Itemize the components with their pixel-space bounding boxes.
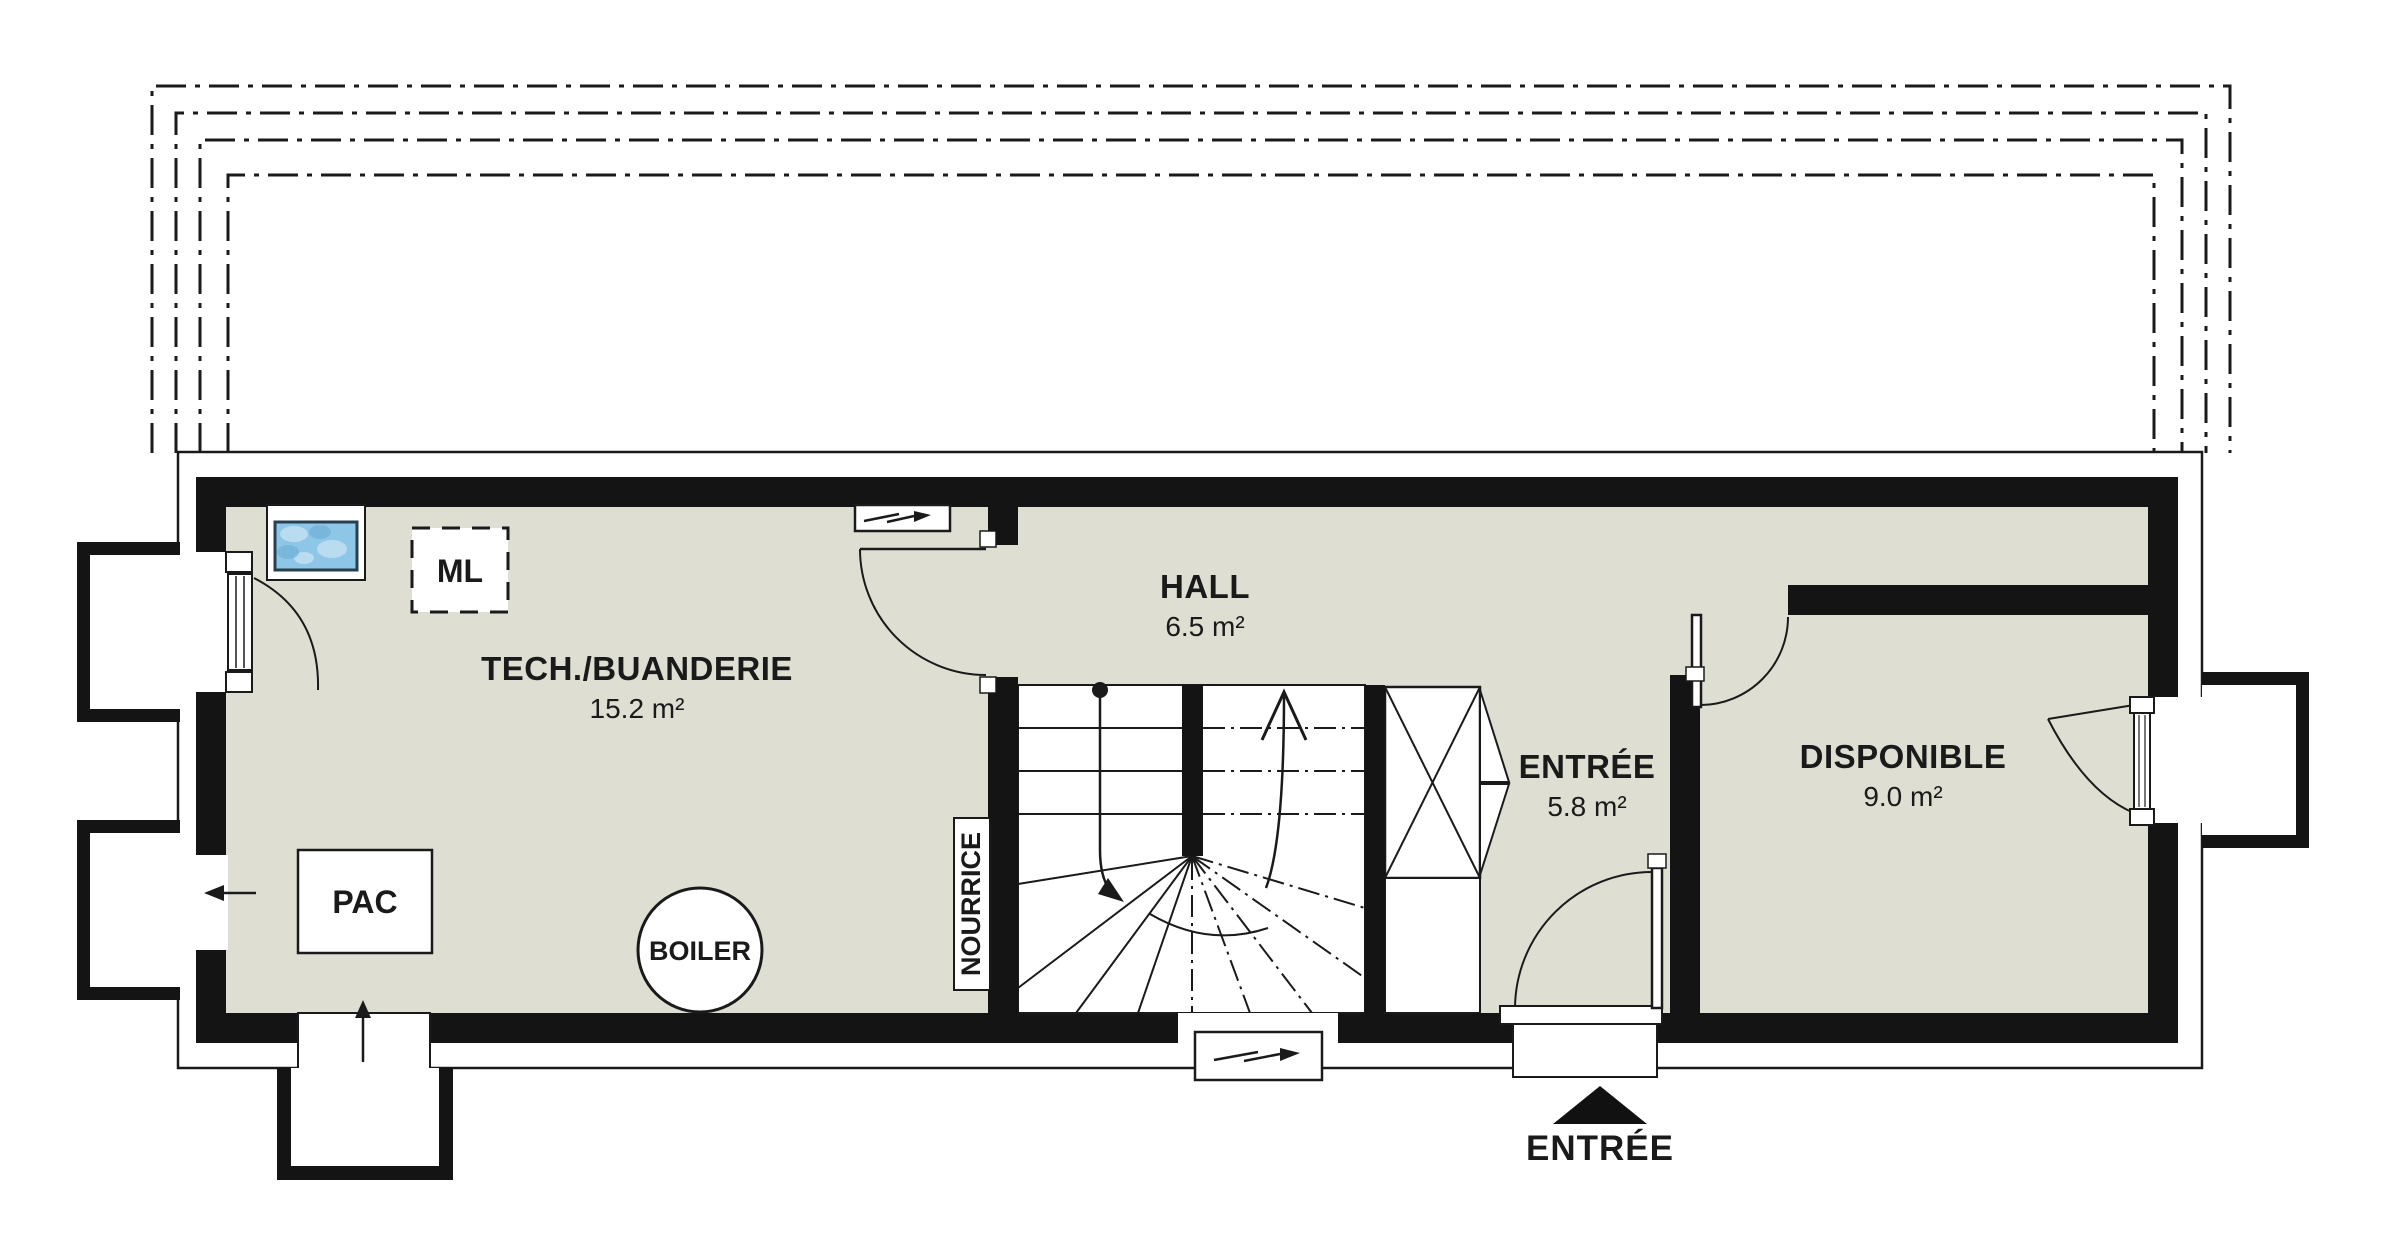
washing-machine-box: ML — [412, 528, 508, 612]
closet-box — [1385, 878, 1480, 1013]
room-name: DISPONIBLE — [1800, 738, 2007, 775]
door-opening-tech — [988, 545, 1018, 677]
washing-machine-label: ML — [437, 553, 483, 589]
heat-pump-box: PAC — [298, 850, 432, 953]
manifold-label: NOURRICE — [956, 832, 986, 976]
room-name: TECH./BUANDERIE — [481, 650, 793, 687]
entrance-arrow-icon — [1553, 1086, 1647, 1124]
roof-outline-guides — [152, 86, 2230, 453]
skylight-water-glass — [267, 505, 365, 580]
heat-pump-label: PAC — [332, 884, 397, 920]
room-area: 5.8 m² — [1547, 791, 1626, 822]
light-well-right — [2202, 672, 2309, 848]
light-well-left-lower — [77, 820, 180, 1000]
light-well-bottom-left — [277, 1068, 453, 1180]
boiler-circle: BOILER — [638, 888, 762, 1012]
floor-plan-page: ML PAC BOILER NOURRICE ENTRÉE — [0, 0, 2386, 1256]
vent-grille-top — [855, 505, 950, 531]
manifold-box: NOURRICE — [954, 818, 990, 990]
room-area: 15.2 m² — [590, 693, 685, 724]
room-name: ENTRÉE — [1519, 748, 1656, 785]
room-area: 6.5 m² — [1165, 611, 1244, 642]
light-well-left-upper — [77, 542, 180, 722]
room-area: 9.0 m² — [1863, 781, 1942, 812]
room-name: HALL — [1160, 568, 1250, 605]
entrance-label: ENTRÉE — [1526, 1128, 1674, 1168]
stair-spine-wall — [1182, 685, 1203, 856]
entrance-marker: ENTRÉE — [1526, 1086, 1674, 1168]
floor-plan-drawing: ML PAC BOILER NOURRICE ENTRÉE — [0, 0, 2386, 1256]
vent-grille-bottom — [1178, 1013, 1338, 1080]
boiler-label: BOILER — [649, 936, 751, 966]
